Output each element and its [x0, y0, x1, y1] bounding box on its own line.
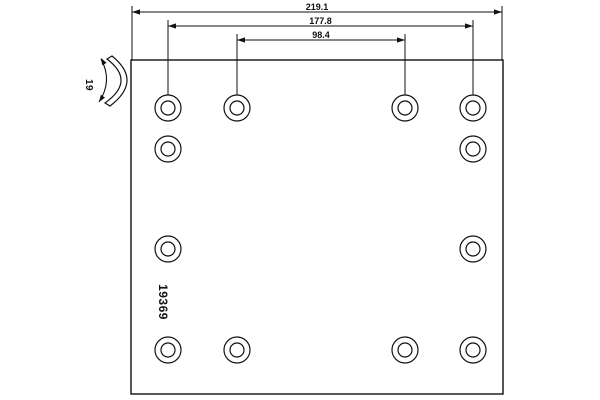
rivet-hole-inner-circle	[466, 242, 480, 256]
arrowhead-icon	[99, 95, 105, 102]
rivet-hole	[155, 337, 181, 363]
rivet-hole	[155, 95, 181, 121]
rivet-hole-inner-circle	[161, 101, 175, 115]
rivet-hole-inner-circle	[161, 343, 175, 357]
rivet-hole	[224, 95, 250, 121]
lining-side-view: 19	[83, 56, 127, 106]
arrowhead-icon	[101, 58, 107, 65]
thickness-dimension-arc	[99, 59, 107, 102]
rivet-hole	[460, 337, 486, 363]
arrowhead-icon	[168, 23, 176, 28]
rivet-hole-inner-circle	[230, 343, 244, 357]
rivet-hole	[460, 136, 486, 162]
rivet-hole	[155, 136, 181, 162]
arrowhead-icon	[465, 23, 473, 28]
dimension-label: 98.4	[312, 30, 330, 40]
rivet-hole	[460, 95, 486, 121]
arrowhead-icon	[237, 37, 245, 42]
rivet-hole-inner-circle	[161, 142, 175, 156]
lining-cross-section	[105, 56, 127, 106]
backplate-outline	[131, 60, 503, 394]
rivet-hole-inner-circle	[230, 101, 244, 115]
arrowhead-icon	[132, 9, 140, 14]
rivet-hole-inner-circle	[466, 101, 480, 115]
dimension-label: 177.8	[309, 16, 332, 26]
rivet-hole	[224, 337, 250, 363]
rivet-hole-inner-circle	[398, 101, 412, 115]
rivet-hole-inner-circle	[466, 343, 480, 357]
rivet-hole	[460, 236, 486, 262]
rivet-hole-inner-circle	[466, 142, 480, 156]
dimension-label: 219.1	[306, 2, 329, 12]
technical-drawing-page: 219.1177.898.4 19 19369	[0, 0, 600, 400]
rivet-hole-inner-circle	[161, 242, 175, 256]
rivet-hole	[155, 236, 181, 262]
arrowhead-icon	[397, 37, 405, 42]
arrowhead-icon	[494, 9, 502, 14]
rivet-hole-inner-circle	[398, 343, 412, 357]
part-number: 19369	[156, 284, 170, 320]
brake-lining-drawing: 219.1177.898.4 19 19369	[0, 0, 600, 400]
rivet-hole	[392, 337, 418, 363]
rivet-hole	[392, 95, 418, 121]
thickness-label: 19	[83, 79, 94, 91]
